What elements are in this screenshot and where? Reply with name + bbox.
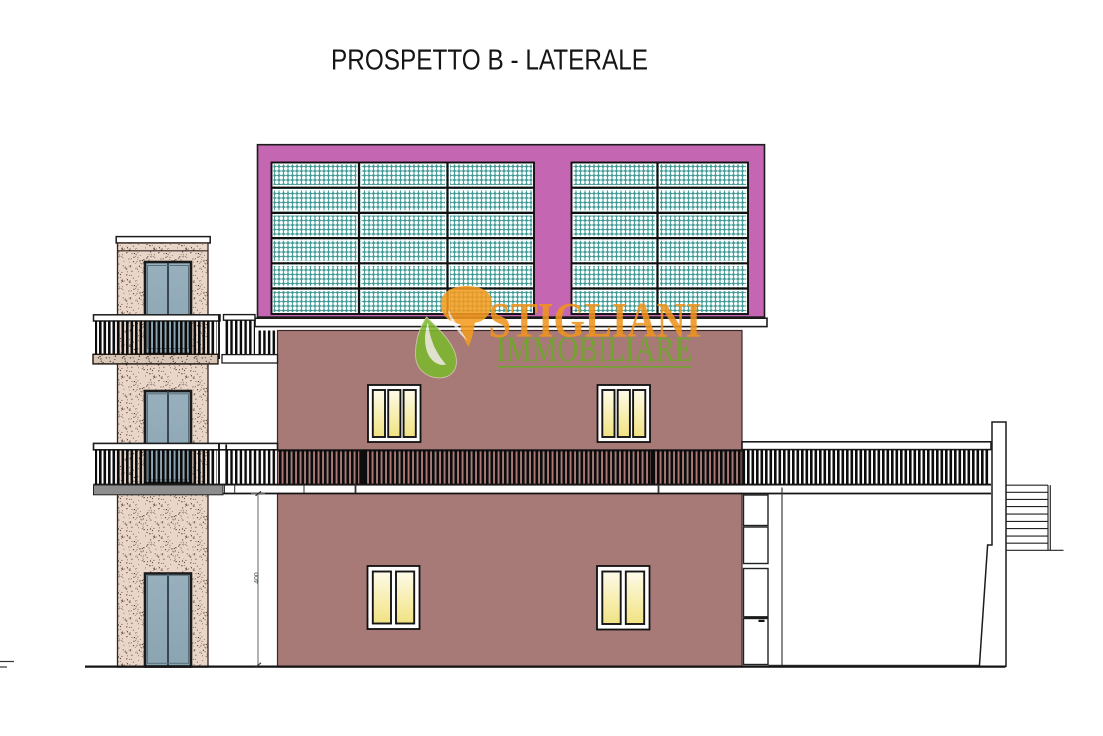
svg-text:400: 400 bbox=[254, 572, 261, 584]
svg-text:IMMOBILIARE: IMMOBILIARE bbox=[497, 329, 693, 369]
svg-text:PROSPETTO B - LATERALE: PROSPETTO B - LATERALE bbox=[331, 45, 648, 77]
